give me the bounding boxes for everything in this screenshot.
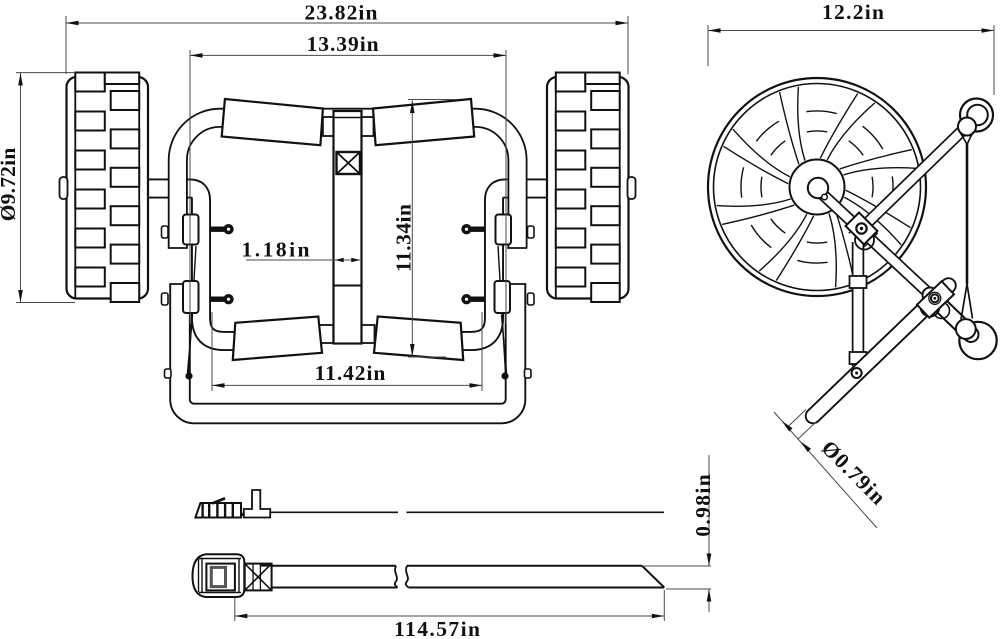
svg-text:1.18in: 1.18in xyxy=(242,238,310,262)
svg-text:11.34in: 11.34in xyxy=(392,204,416,272)
svg-text:23.82in: 23.82in xyxy=(305,1,378,25)
svg-text:13.39in: 13.39in xyxy=(307,32,379,56)
svg-text:Ø9.72in: Ø9.72in xyxy=(0,148,20,222)
svg-text:11.42in: 11.42in xyxy=(315,361,386,385)
svg-text:12.2in: 12.2in xyxy=(822,0,884,24)
svg-text:114.57in: 114.57in xyxy=(394,617,480,639)
svg-text:0.98in: 0.98in xyxy=(691,474,715,537)
